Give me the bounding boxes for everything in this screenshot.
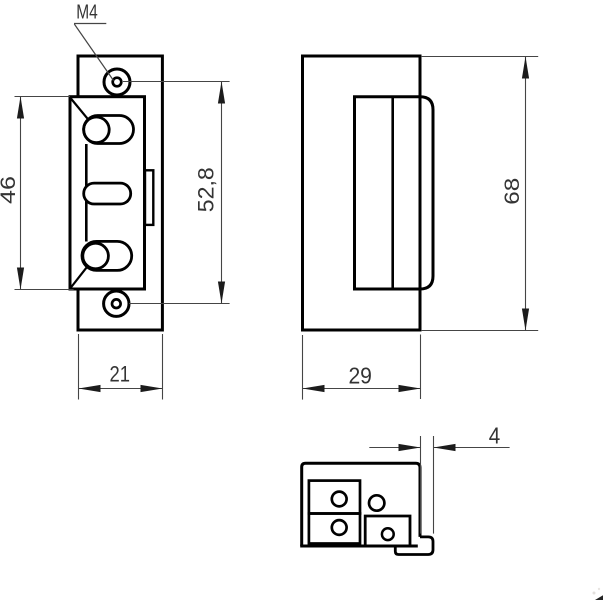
svg-text:21: 21 bbox=[110, 362, 131, 387]
svg-text:M4: M4 bbox=[76, 2, 98, 24]
svg-text:46: 46 bbox=[0, 176, 20, 204]
svg-text:4: 4 bbox=[489, 422, 501, 448]
svg-text:52,8: 52,8 bbox=[194, 167, 219, 212]
svg-text:29: 29 bbox=[348, 363, 372, 389]
svg-text:68: 68 bbox=[500, 178, 524, 205]
